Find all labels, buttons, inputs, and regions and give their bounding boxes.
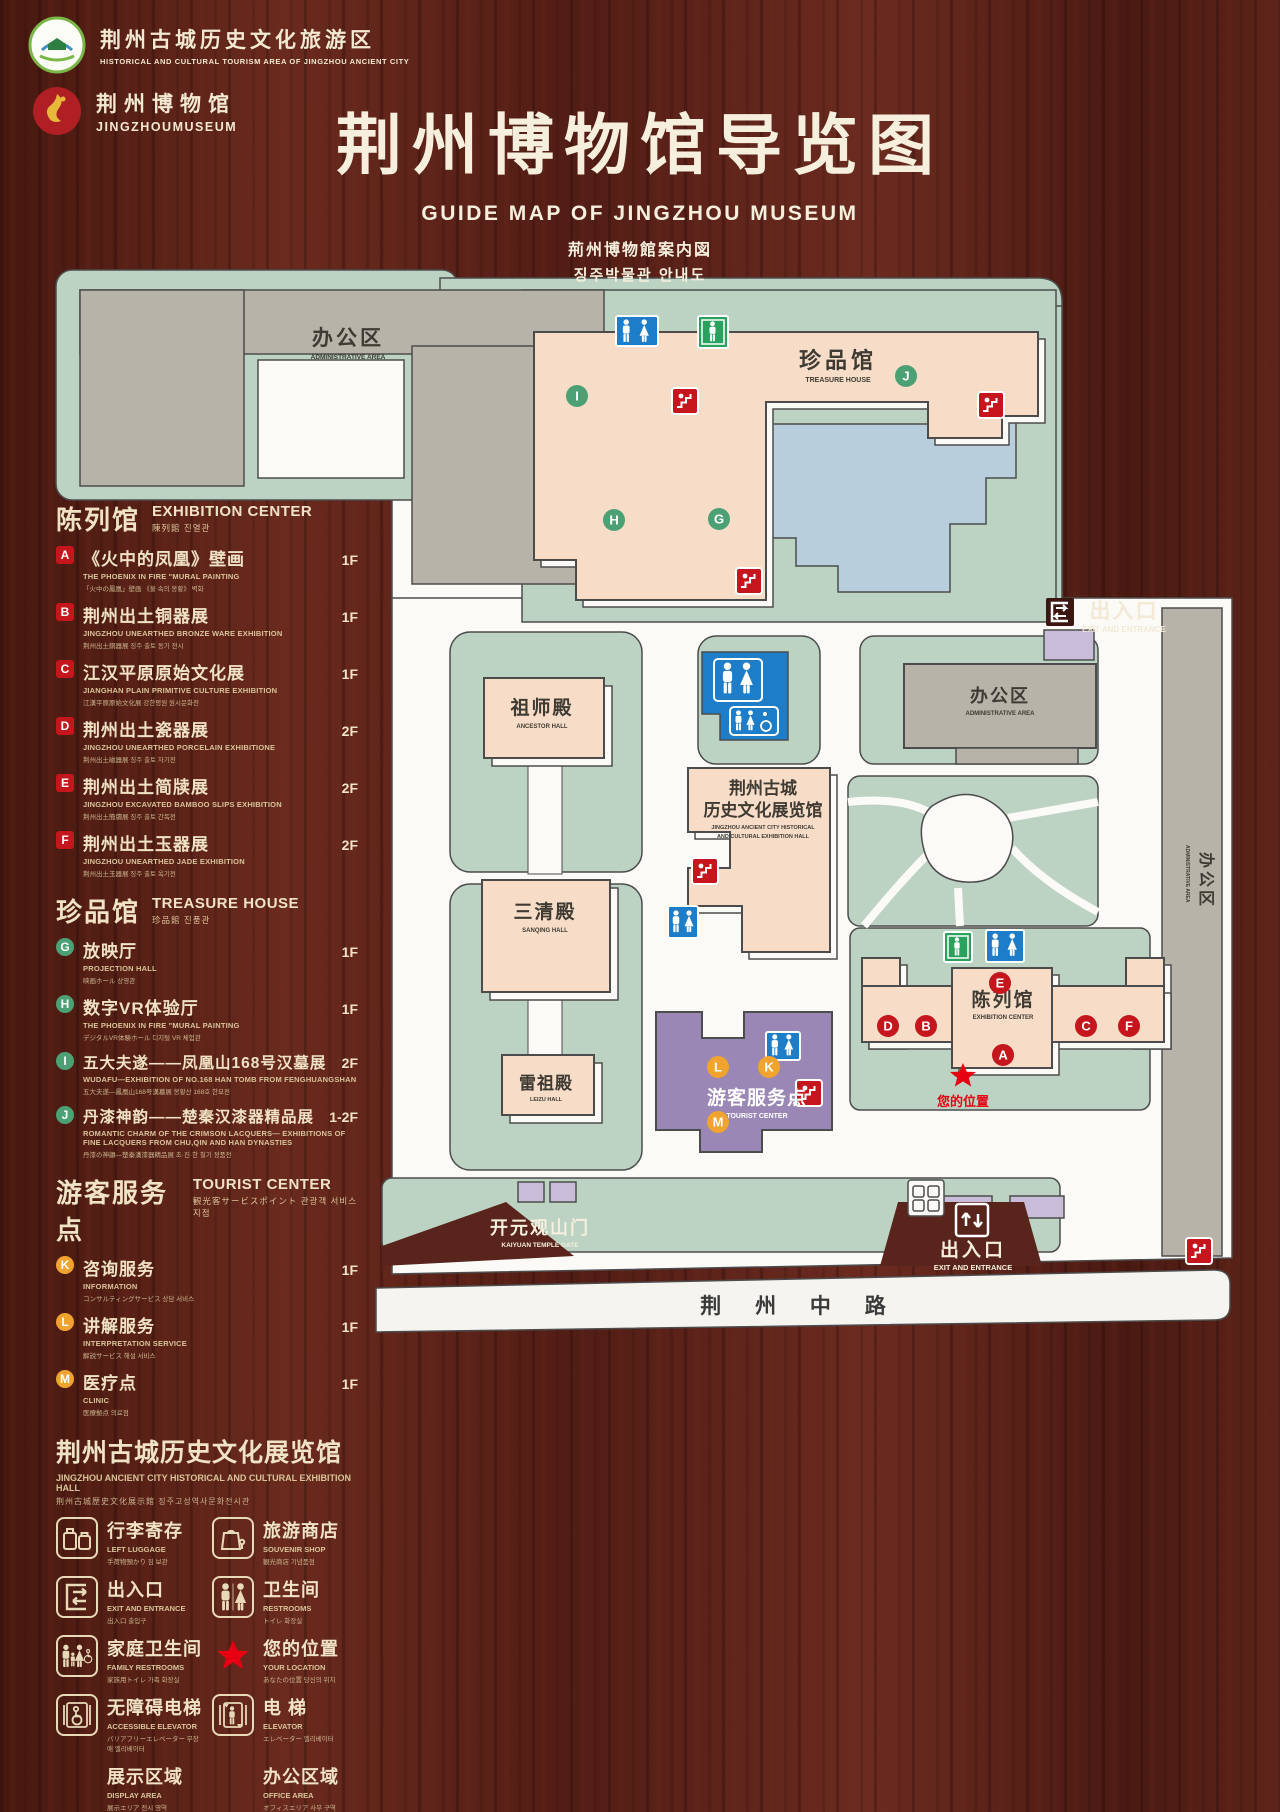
history-hall-label-en1: JINGZHOU ANCIENT CITY HISTORICAL [711,825,815,831]
marker-badge: E [56,774,74,792]
section-title: 游客服务点 [56,1173,181,1247]
legend-label-en: OFFICE AREA [263,1791,339,1800]
corridor [528,758,562,874]
list-item-c: C 江汉平原原始文化展1F JIANGHAN PLAIN PRIMITIVE C… [56,659,358,707]
item-name-en: INTERPRETATION SERVICE [83,1339,358,1348]
note-title-en: JINGZHOU ANCIENT CITY HISTORICAL AND CUL… [56,1473,358,1493]
item-name: 荆州出土玉器展 [83,830,209,855]
road-label: 荆 州 中 路 [700,1294,900,1318]
accessible-elevator-icon [56,1694,98,1736]
item-name-en: JINGZHOU UNEARTHED PORCELAIN EXHIBITIONE [83,743,358,752]
legend-label-en: FAMILY RESTROOMS [107,1663,202,1672]
legend-office-area: 办公区域OFFICE AREAオフィスエリア 사무 구역 [212,1763,358,1812]
exit-entrance-icon [56,1576,98,1618]
display-area-swatch [56,1763,98,1805]
item-name: 荆州出土铜器展 [83,602,209,627]
item-floor: 2F [336,837,358,853]
item-name-en: JINGZHOU UNEARTHED JADE EXHIBITION [83,857,358,866]
list-item-d: D 荆州出土瓷器展2F JINGZHOU UNEARTHED PORCELAIN… [56,716,358,764]
item-name-en: WUDAFU—EXHIBITION OF NO.168 HAN TOMB FRO… [83,1075,358,1084]
item-name-sub: 荆州出土銅器展 징주 출토 동기 전시 [83,640,358,650]
map-legend: 行李寄存LEFT LUGGAGE手荷物預かり 짐 보관 旅游商店SOUVENIR… [56,1517,358,1812]
section-tourist-center: 游客服务点 TOURIST CENTER 観光客サービスポイント 관광객 서비스… [56,1173,358,1247]
legend-label: 出入口 [107,1576,185,1602]
item-name-sub: 荆州出土磁器展 징주 출토 자기전 [83,754,358,764]
item-name-en: INFORMATION [83,1282,358,1291]
item-floor: 1F [336,609,358,625]
list-item-b: B 荆州出土铜器展1F JINGZHOU UNEARTHED BRONZE WA… [56,602,358,650]
admin-building-right [904,664,1096,748]
marker-badge: K [56,1256,74,1274]
item-name: 丹漆神韵——楚秦汉漆器精品展 [83,1105,314,1127]
leizu-label-en: LEIZU HALL [530,1097,563,1103]
section-title: 珍品馆 [56,892,140,929]
admin-right-label: 办公区 [970,685,1030,706]
item-name: 医疗点 [83,1369,137,1394]
elevator-icon [212,1694,254,1736]
tourist-label: 游客服务点 [707,1086,807,1109]
svg-text:L: L [714,1060,722,1075]
item-name-sub: 映画ホール 상영관 [83,975,358,985]
legend-label: 行李寄存 [107,1517,183,1543]
marker-badge: M [56,1370,74,1388]
restroom-icon [986,930,1024,962]
sanqing-label: 三清殿 [513,900,576,923]
elevator-icon-green [944,932,972,962]
legend-family-restrooms: 家庭卫生间FAMILY RESTROOMS家族用トイレ 가족 화장실 [56,1635,202,1684]
item-name-en: THE PHOENIX IN FIRE "MURAL PAINTING [83,572,358,581]
office-strip-label: 办公区 [1197,852,1216,909]
tourism-area-logo-icon [28,16,86,74]
page-title-ja: 荊州博物館案内図 [0,236,1280,260]
list-item-i: I 五大夫遂——凤凰山168号汉墓展2F WUDAFU—EXHIBITION O… [56,1051,358,1096]
admin-building-right-step [956,748,1078,764]
gate-label-en: KAIYUAN TEMPLE GATE [501,1242,579,1249]
svg-text:G: G [714,512,724,527]
treasure-label-en: TREASURE HOUSE [805,377,871,384]
your-location-star-icon [212,1635,254,1677]
restroom-icon [616,316,658,346]
item-name-sub: 荆州出土玉器展 징주 출토 옥기전 [83,868,358,878]
marker-badge: C [56,660,74,678]
garden-pond [921,794,1012,882]
legend-accessible-elevator: 无障碍电梯ACCESSIBLE ELEVATORバリアフリーエレベーター 무장애… [56,1694,202,1753]
item-name-en: JINGZHOU UNEARTHED BRONZE WARE EXHIBITIO… [83,629,358,638]
legend-label-en: LEFT LUGGAGE [107,1545,183,1554]
marker-badge: J [56,1106,74,1124]
tourist-label-en: TOURIST CENTER [726,1113,787,1120]
marker-badge: B [56,603,74,621]
item-name: 数字VR体验厅 [83,994,199,1019]
item-floor: 2F [336,780,358,796]
elevator-icon-green [698,316,728,348]
exhibition-label-en: EXHIBITION CENTER [973,1015,1034,1021]
list-item-l: L 讲解服务1F INTERPRETATION SERVICE 解説サービス 해… [56,1312,358,1360]
list-item-k: K 咨询服务1F INFORMATION コンサルティングサービス 상담 서비스 [56,1255,358,1303]
item-name-en: CLINIC [83,1396,358,1405]
legend-label-sub: 手荷物預かり 짐 보관 [107,1556,183,1566]
marker-badge: D [56,717,74,735]
item-name: 咨询服务 [83,1255,155,1280]
legend-label-en: ELEVATOR [263,1722,334,1731]
page-title: 荆州博物馆导览图 [0,92,1280,188]
marker-badge: G [56,938,74,956]
marker-badge: A [56,546,74,564]
history-hall-note: 荆州古城历史文化展览馆 JINGZHOU ANCIENT CITY HISTOR… [56,1433,358,1507]
legend-label: 电 梯 [263,1694,334,1720]
exit-icon [1046,598,1074,626]
item-name-en: JIANGHAN PLAIN PRIMITIVE CULTURE EXHIBIT… [83,686,358,695]
exit-bottom-label: 出入口 [940,1238,1006,1261]
item-name-sub: 江漢平原原始文化展 강한평원 원시문화전 [83,697,358,707]
section-title-en: TOURIST CENTER [193,1176,358,1193]
admin-top-label: 办公区 [312,327,384,350]
list-item-f: F 荆州出土玉器展2F JINGZHOU UNEARTHED JADE EXHI… [56,830,358,878]
corridor [528,992,562,1056]
history-hall-label-en2: AND CULTURAL EXHIBITION HALL [717,834,810,840]
legend-label: 无障碍电梯 [107,1694,202,1720]
item-floor: 1F [336,666,358,682]
svg-text:K: K [764,1060,774,1075]
restroom-icon [766,1032,800,1060]
item-floor: 2F [336,1055,358,1071]
restrooms-icon [212,1576,254,1618]
svg-text:C: C [1081,1019,1091,1034]
svg-text:H: H [609,513,618,528]
legend-label-sub: トイレ 화장실 [263,1615,320,1625]
item-name: 《火中的凤凰》壁画 [83,545,245,570]
office-building-left [80,290,244,486]
item-name: 荆州出土瓷器展 [83,716,209,741]
svg-text:M: M [713,1115,724,1130]
legend-label-sub: バリアフリーエレベーター 무장애 엘리베이터 [107,1733,202,1753]
legend-souvenir-shop: 旅游商店SOUVENIR SHOP観光商店 기념품점 [212,1517,358,1566]
exit-bottom-label-en: EXIT AND ENTRANCE [934,1263,1012,1272]
item-floor: 1F [336,944,358,960]
legend-sidebar: 陈列馆 EXHIBITION CENTER 陳列館 진열관 A 《火中的凤凰》壁… [56,500,358,1812]
admin-top-label-en: ADMINISTRATIVE AREA [311,354,386,361]
item-name-en: ROMANTIC CHARM OF THE CRIMSON LACQUERS— … [83,1129,358,1147]
legend-label-en: SOUVENIR SHOP [263,1545,339,1554]
item-name-sub: 丹漆の神韻—楚秦漢漆器精品展 초·진·한 칠기 정품전 [83,1149,358,1159]
sanqing-label-en: SANQING HALL [522,928,568,934]
item-name: 荆州出土简牍展 [83,773,209,798]
tourism-area-name-en: HISTORICAL AND CULTURAL TOURISM AREA OF … [100,57,409,66]
item-name: 江汉平原原始文化展 [83,659,245,684]
svg-text:I: I [575,389,579,404]
section-exhibition-center: 陈列馆 EXHIBITION CENTER 陳列館 진열관 [56,500,358,537]
history-hall-label1: 荆州古城 [729,778,797,798]
item-floor: 1F [336,1001,358,1017]
left-luggage-icon [908,1180,944,1216]
office-strip-right [1162,608,1222,1256]
history-hall-label2: 历史文化展览馆 [704,800,823,820]
item-floor: 1F [336,1262,358,1278]
legend-label-en: RESTROOMS [263,1604,320,1613]
list-item-e: E 荆州出土简牍展2F JINGZHOU EXCAVATED BAMBOO SL… [56,773,358,821]
exit-right-label: 出入口 [1090,600,1159,623]
item-name: 讲解服务 [83,1312,155,1337]
legend-label: 您的位置 [263,1635,339,1661]
section-title-en: EXHIBITION CENTER [152,503,312,520]
legend-label: 旅游商店 [263,1517,339,1543]
legend-label: 家庭卫生间 [107,1635,202,1661]
exit-right-label-en: EXIT AND ENTRANCE [1082,625,1166,634]
item-floor: 1F [336,552,358,568]
item-floor: 2F [336,723,358,739]
svg-text:J: J [902,369,909,384]
item-name-sub: 五大夫遂—鳳凰山168号漢墓展 봉황산 168호 한묘전 [83,1086,358,1096]
marker-badge: I [56,1052,74,1070]
legend-label: 办公区域 [263,1763,339,1789]
item-name-en: PROJECTION HALL [83,964,358,973]
section-subtitle: 観光客サービスポイント 관광객 서비스 지점 [193,1195,358,1219]
legend-label-en: YOUR LOCATION [263,1663,339,1672]
tourism-area-name: 荆州古城历史文化旅游区 [100,24,409,54]
svg-text:D: D [883,1019,892,1034]
list-item-h: H 数字VR体验厅1F THE PHOENIX IN FIRE "MURAL P… [56,994,358,1042]
note-title: 荆州古城历史文化展览馆 [56,1433,358,1469]
item-floor: 1-2F [323,1109,358,1125]
office-area-swatch [212,1763,254,1805]
ancestor-label-en: ANCESTOR HALL [516,724,568,730]
marker-badge: F [56,831,74,849]
item-name: 五大夫遂——凤凰山168号汉墓展 [83,1051,326,1073]
gate-label: 开元观山门 [490,1217,590,1238]
your-location-label: 您的位置 [937,1094,989,1109]
souvenir-shop-icon [212,1517,254,1559]
list-item-a: A 《火中的凤凰》壁画1F THE PHOENIX IN FIRE "MURAL… [56,545,358,593]
legend-exit-entrance: 出入口EXIT AND ENTRANCE出入口 출입구 [56,1576,202,1625]
item-floor: 1F [336,1319,358,1335]
legend-display-area: 展示区域DISPLAY AREA展示エリア 전시 영역 [56,1763,202,1812]
item-name-sub: 医療拠点 의료점 [83,1407,358,1417]
svg-text:F: F [1125,1019,1133,1034]
page-title-ko: 징주박물관 안내도 [0,264,1280,285]
tourism-area-logo: 荆州古城历史文化旅游区 HISTORICAL AND CULTURAL TOUR… [28,16,409,74]
list-item-m: M 医疗点1F CLINIC 医療拠点 의료점 [56,1369,358,1417]
item-name-sub: 解説サービス 해설 서비스 [83,1350,358,1360]
item-name-sub: コンサルティングサービス 상담 서비스 [83,1293,358,1303]
item-name-sub: 荆州出土簡牘展 징주 출토 간독전 [83,811,358,821]
page-title-en: GUIDE MAP OF JINGZHOU MUSEUM [0,202,1280,226]
leizu-label: 雷祖殿 [519,1073,573,1093]
marker-badge: H [56,995,74,1013]
item-floor: 1F [336,1376,358,1392]
legend-your-location: 您的位置YOUR LOCATIONあなたの位置 당신의 위치 [212,1635,358,1684]
section-treasure-house: 珍品馆 TREASURE HOUSE 珍品館 진품관 [56,892,358,929]
legend-label-en: DISPLAY AREA [107,1791,183,1800]
svg-text:B: B [921,1019,930,1034]
legend-label: 展示区域 [107,1763,183,1789]
legend-label-sub: オフィスエリア 사무 구역 [263,1802,339,1812]
legend-label-en: ACCESSIBLE ELEVATOR [107,1722,202,1731]
list-item-j: J 丹漆神韵——楚秦汉漆器精品展1-2F ROMANTIC CHARM OF T… [56,1105,358,1159]
admin-right-label-en: ADMINISTRATIVE AREA [966,711,1036,717]
section-title-en: TREASURE HOUSE [152,895,299,912]
legend-label-sub: 観光商店 기념품점 [263,1556,339,1566]
restroom-icon [668,906,698,938]
section-subtitle: 陳列館 진열관 [152,522,312,534]
svg-text:A: A [998,1048,1008,1063]
section-subtitle: 珍品館 진품관 [152,914,299,926]
item-name-sub: デジタルVR体験ホール 디지털 VR 체험관 [83,1032,358,1042]
marker-badge: L [56,1313,74,1331]
section-title: 陈列馆 [56,500,140,537]
item-name-en: JINGZHOU EXCAVATED BAMBOO SLIPS EXHIBITI… [83,800,358,809]
legend-elevator: 电 梯ELEVATORエレベーター 엘리베이터 [212,1694,358,1753]
legend-label-en: EXIT AND ENTRANCE [107,1604,185,1613]
left-luggage-icon [56,1517,98,1559]
legend-left-luggage: 行李寄存LEFT LUGGAGE手荷物預かり 짐 보관 [56,1517,202,1566]
svg-text:E: E [996,976,1005,991]
legend-label-sub: エレベーター 엘리베이터 [263,1733,334,1743]
legend-label: 卫生间 [263,1576,320,1602]
legend-restrooms: 卫生间RESTROOMSトイレ 화장실 [212,1576,358,1625]
treasure-label: 珍品馆 [799,348,877,373]
item-name: 放映厅 [83,937,137,962]
legend-label-sub: 家族用トイレ 가족 화장실 [107,1674,202,1684]
legend-label-sub: 展示エリア 전시 영역 [107,1802,183,1812]
legend-label-sub: あなたの位置 당신의 위치 [263,1674,339,1684]
item-name-en: THE PHOENIX IN FIRE "MURAL PAINTING [83,1021,358,1030]
office-courtyard [258,360,404,478]
list-item-g: G 放映厅1F PROJECTION HALL 映画ホール 상영관 [56,937,358,985]
legend-label-sub: 出入口 출입구 [107,1615,185,1625]
item-name-sub: 「火中の鳳凰」壁画 《불 속의 봉황》 벽화 [83,583,358,593]
family-restrooms-icon [56,1635,98,1677]
note-title-sub: 荆州古城歴史文化展示館 징주고성역사문화전시관 [56,1496,358,1507]
ancestor-label: 祖师殿 [509,696,573,719]
office-strip-label-en: ADMINISTRATIVE AREA [1184,845,1190,903]
